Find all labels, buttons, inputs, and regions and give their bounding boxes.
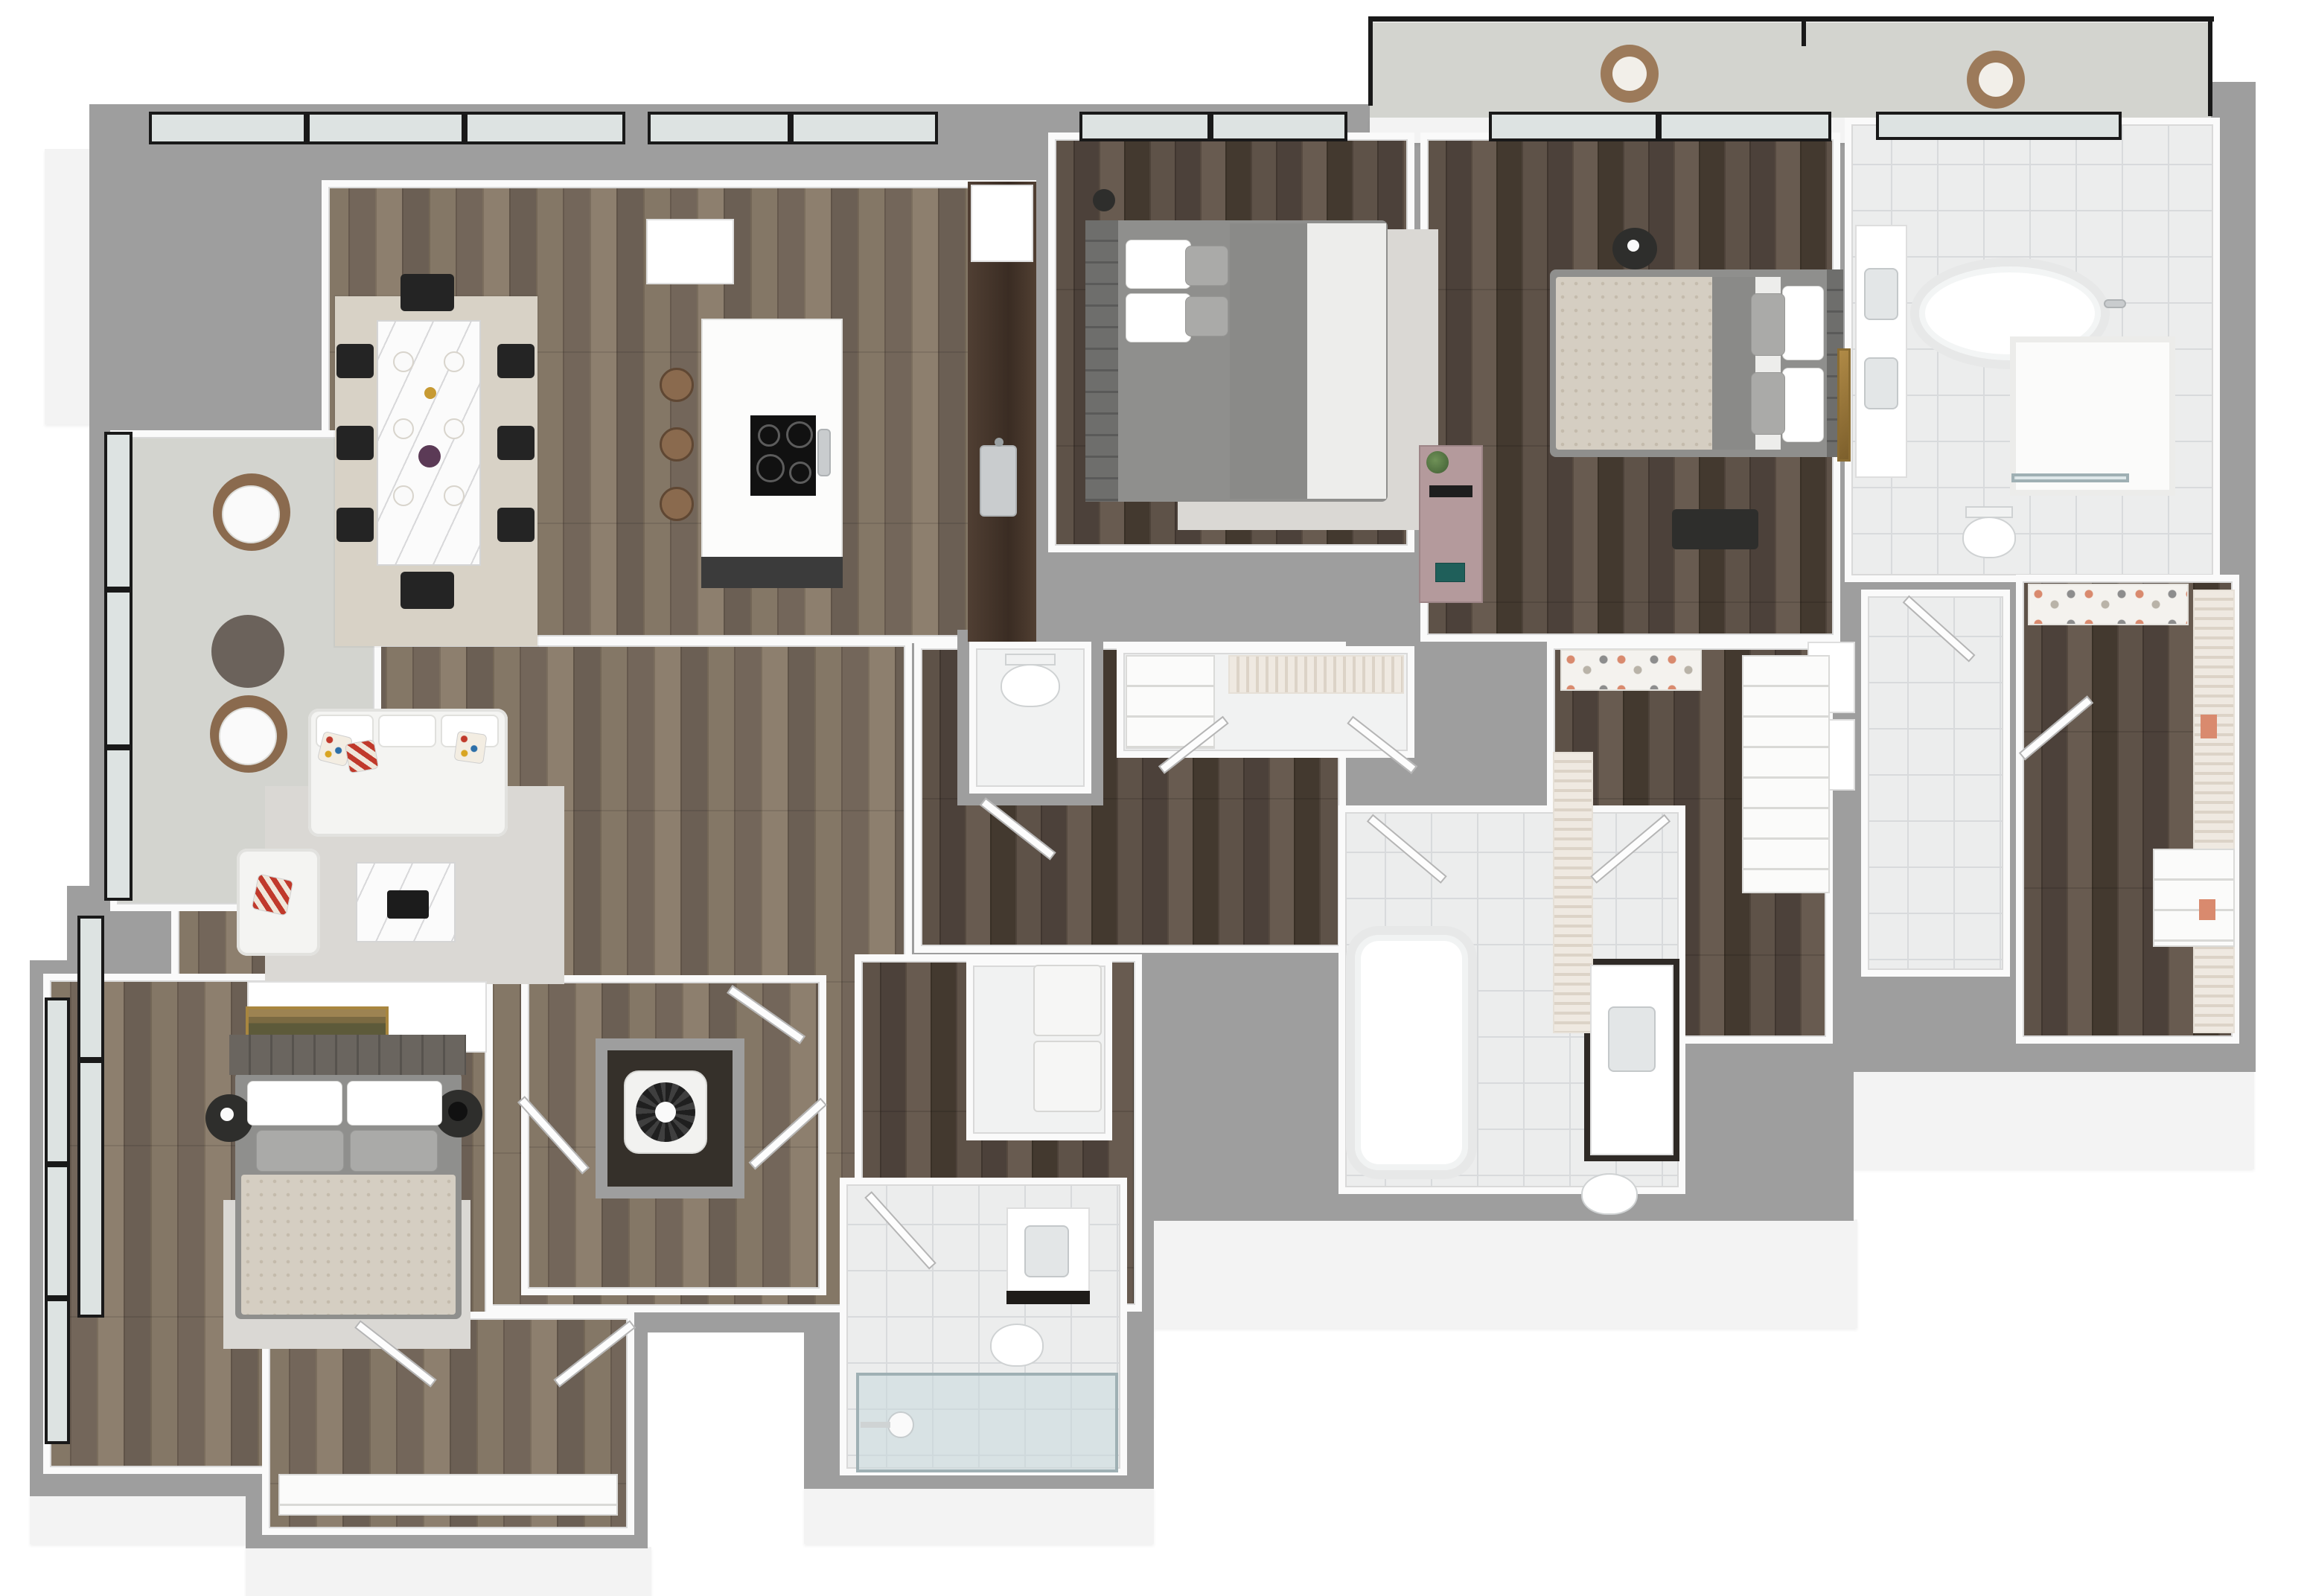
terrace-railing-post [1802, 16, 1806, 46]
vanity-sink [1024, 1225, 1069, 1277]
dining-chair [497, 508, 535, 542]
vanity-sink [1608, 1006, 1656, 1072]
pillow-gray [256, 1130, 344, 1172]
washer [1033, 965, 1102, 1036]
armchair-pillow [252, 874, 294, 916]
bar-stool [660, 427, 694, 462]
dryer [1033, 1041, 1102, 1112]
master-vanity [1855, 225, 1907, 478]
bedroom1-west-window [45, 997, 70, 1444]
closet1-shelf-band [278, 1474, 618, 1516]
pillow-gray [1185, 296, 1228, 336]
place-setting [444, 418, 465, 439]
window-mullion [1656, 112, 1662, 141]
cooktop [750, 415, 816, 496]
shoe-shelf [1560, 649, 1702, 691]
floor-plan-3d [0, 0, 2307, 1563]
pillow [1782, 368, 1824, 442]
pillow-gray [350, 1130, 438, 1172]
pillow-gray [1185, 246, 1228, 286]
pillow [1126, 240, 1191, 289]
exterior-face [1831, 1070, 2254, 1169]
master-bench [1672, 509, 1758, 549]
hvac-fan-hub [655, 1102, 676, 1123]
place-setting [393, 418, 414, 439]
nightstand-flowers [220, 1108, 234, 1121]
hanging-garment-accent [2199, 899, 2215, 920]
window-mullion [104, 587, 133, 593]
dining-chair [401, 274, 454, 311]
balcony-side-table [211, 615, 284, 688]
shower-glass [2011, 473, 2129, 482]
bar-stool [660, 368, 694, 402]
dining-chair [401, 572, 454, 609]
dining-chair [336, 344, 374, 378]
throw-pillow [453, 730, 487, 764]
table-lamp [448, 1102, 468, 1121]
place-setting [444, 485, 465, 506]
desk-plant [1426, 451, 1449, 473]
toilet [1581, 1173, 1638, 1215]
terrace [1370, 22, 2211, 121]
balcony-table [219, 707, 277, 765]
arc-lamp [1093, 189, 1115, 211]
bedroom2-headboard [1085, 220, 1118, 502]
vanity-sink [1864, 268, 1898, 320]
terrace-chair-cushion [1979, 63, 2013, 97]
window-mullion [462, 112, 468, 144]
shower-head [887, 1411, 914, 1438]
window-mullion [1207, 112, 1213, 141]
dining-table [377, 320, 481, 566]
shower-arm [861, 1422, 890, 1428]
dining-chair [336, 426, 374, 460]
nightstand-vase [1627, 240, 1639, 252]
toilet [1962, 517, 2016, 558]
toilet [990, 1324, 1044, 1367]
clothes-rack [1553, 752, 1593, 1033]
terrace-railing-post [1368, 16, 1373, 106]
exterior-face [1154, 1219, 1857, 1328]
bar-stool [660, 487, 694, 521]
counter-white-section [971, 185, 1033, 262]
terrace-chair-cushion [1612, 57, 1647, 91]
master-bath-window [1876, 112, 2122, 140]
bedroom1-headboard [229, 1035, 466, 1075]
bathtub [1346, 926, 1477, 1179]
place-setting [444, 351, 465, 372]
dining-window [149, 112, 625, 144]
pillow-gray [1751, 372, 1785, 435]
window-mullion [77, 1057, 104, 1063]
terrace-glass-railing [1368, 16, 2214, 22]
pillow [247, 1081, 342, 1126]
bedroom2-window [1079, 112, 1347, 141]
exterior-face [804, 1487, 1154, 1544]
pillow [347, 1081, 442, 1126]
bedroom2-blanket [1230, 223, 1318, 499]
bedroom1-duvet [241, 1175, 456, 1315]
closet-corridor-floor [1861, 590, 2010, 977]
living-west-window [77, 916, 104, 1318]
landscape-painting [246, 1006, 389, 1038]
island-vent [817, 429, 831, 476]
place-setting [393, 485, 414, 506]
pillow-gray [1751, 293, 1785, 356]
fruit-bowl [418, 445, 441, 467]
gold-wall-art [1837, 348, 1851, 462]
dining-chair [497, 344, 535, 378]
sofa-back-cushion [378, 715, 436, 747]
tub-faucet [2104, 299, 2126, 308]
window-mullion [788, 112, 794, 144]
terrace-railing-post [2208, 16, 2212, 116]
closet-shelving-unit [2153, 849, 2235, 947]
balcony-glazing [104, 432, 133, 901]
window-mullion [45, 1161, 70, 1167]
window-mullion [45, 1295, 70, 1301]
vanity-sink [1864, 357, 1898, 409]
walk-in-shower [2010, 336, 2175, 496]
pillow [1126, 293, 1191, 342]
place-setting [393, 351, 414, 372]
kitchen-cabinet [646, 219, 734, 284]
balcony-table [222, 485, 280, 543]
window-mullion [104, 744, 133, 750]
dining-chair [497, 426, 535, 460]
bedroom2-duvet [1307, 223, 1386, 499]
pillow [1782, 286, 1824, 360]
table-decor [424, 387, 436, 399]
window-mullion [304, 112, 310, 144]
desk-book [1435, 563, 1465, 582]
dining-chair [336, 508, 374, 542]
hanging-garment-accent [2201, 715, 2217, 738]
powder-toilet-tank [1005, 654, 1056, 665]
faucet [995, 438, 1003, 447]
powder-toilet [1001, 664, 1060, 707]
wardrobe [1742, 655, 1830, 893]
bath3-vanity-base [1006, 1291, 1090, 1304]
closet-rod-clothes [1228, 655, 1404, 694]
shoe-shelf [2028, 584, 2189, 625]
island-dark-end [701, 557, 843, 588]
exterior-face [246, 1547, 651, 1596]
clothes-rack [2193, 590, 2235, 1033]
desk-monitor [1429, 485, 1472, 497]
throw-pillow [345, 739, 379, 773]
coffee-table-tray [387, 890, 429, 919]
kitchen-sink [980, 445, 1017, 517]
toilet-tank [1965, 506, 2013, 518]
